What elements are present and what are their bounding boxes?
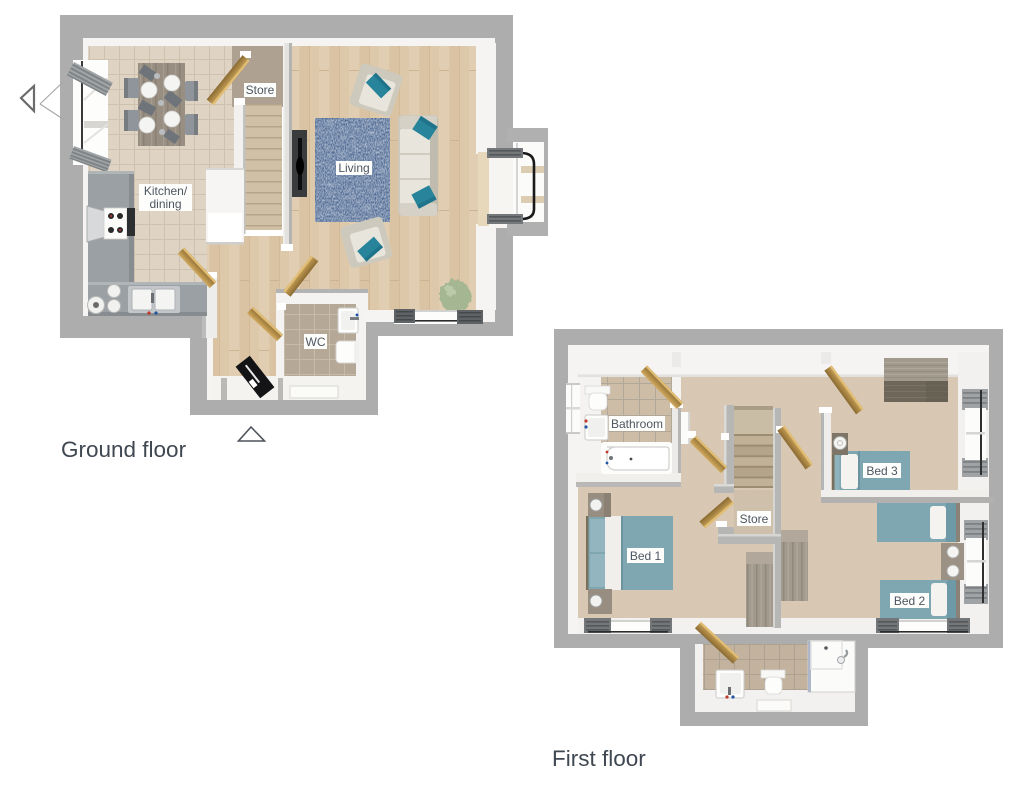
svg-text:Store: Store: [740, 512, 769, 526]
svg-text:Bed 2: Bed 2: [894, 594, 926, 608]
svg-text:Bed 3: Bed 3: [866, 464, 898, 478]
svg-text:dining: dining: [149, 197, 181, 211]
svg-text:Ground floor: Ground floor: [61, 437, 187, 462]
svg-text:WC: WC: [306, 335, 326, 349]
svg-text:Bed 1: Bed 1: [630, 549, 662, 563]
svg-text:First floor: First floor: [552, 746, 646, 771]
svg-text:Store: Store: [246, 83, 275, 97]
svg-text:Kitchen/: Kitchen/: [144, 184, 188, 198]
svg-text:Living: Living: [338, 161, 369, 175]
svg-text:Bathroom: Bathroom: [611, 417, 663, 431]
